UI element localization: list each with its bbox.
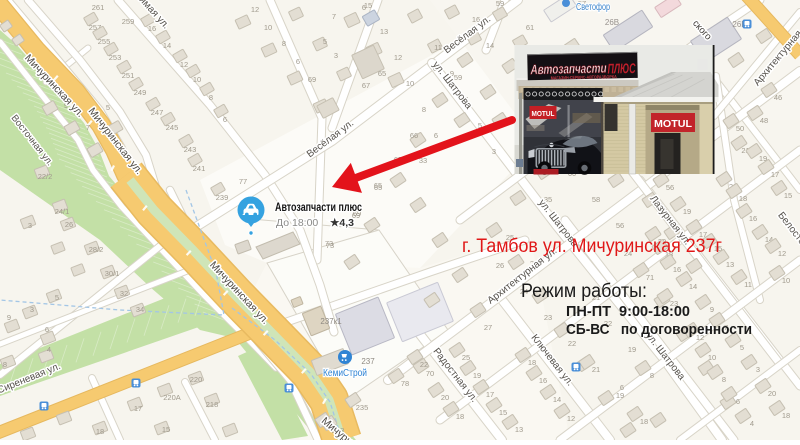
svg-text:50: 50	[736, 124, 744, 133]
svg-text:СБ-ВС по договоренности: СБ-ВС по договоренности	[566, 321, 752, 338]
svg-text:19: 19	[683, 207, 691, 216]
svg-text:48: 48	[760, 116, 768, 125]
svg-text:г. Тамбов ул. Мичуринская 237г: г. Тамбов ул. Мичуринская 237г	[462, 235, 722, 257]
svg-text:15: 15	[162, 425, 170, 434]
svg-text:27: 27	[484, 323, 492, 332]
svg-text:66: 66	[410, 131, 418, 140]
svg-text:253: 253	[109, 53, 122, 62]
svg-text:5: 5	[106, 103, 110, 112]
svg-text:6: 6	[736, 397, 740, 406]
svg-text:3: 3	[756, 365, 760, 374]
svg-text:3: 3	[334, 51, 338, 60]
svg-text:10: 10	[193, 75, 201, 84]
svg-text:17: 17	[771, 170, 779, 179]
svg-text:КемиСтрой: КемиСтрой	[323, 367, 367, 379]
svg-text:20: 20	[441, 393, 449, 402]
svg-text:8: 8	[722, 375, 726, 384]
svg-text:73: 73	[325, 239, 333, 248]
svg-text:12: 12	[567, 414, 575, 423]
svg-text:220: 220	[190, 375, 203, 384]
svg-text:56: 56	[616, 221, 624, 230]
svg-text:8: 8	[650, 371, 654, 380]
svg-text:9: 9	[7, 313, 11, 322]
svg-text:17: 17	[134, 404, 142, 413]
svg-text:6: 6	[296, 57, 300, 66]
svg-text:12: 12	[778, 249, 786, 258]
svg-text:7: 7	[332, 12, 336, 21]
svg-text:16: 16	[673, 265, 681, 274]
svg-text:18: 18	[456, 412, 464, 421]
svg-text:251: 251	[122, 71, 135, 80]
svg-text:22: 22	[420, 360, 428, 369]
svg-text:15: 15	[364, 1, 372, 10]
svg-text:259: 259	[122, 17, 135, 26]
svg-text:6: 6	[434, 131, 438, 140]
svg-text:13: 13	[515, 425, 523, 434]
svg-text:12: 12	[180, 60, 188, 69]
svg-text:Светофор: Светофор	[576, 1, 610, 13]
svg-text:18: 18	[739, 194, 747, 203]
svg-text:16: 16	[148, 24, 156, 33]
svg-text:4: 4	[750, 419, 754, 428]
svg-text:8: 8	[209, 93, 213, 102]
svg-text:30/1: 30/1	[105, 269, 120, 278]
svg-text:243: 243	[184, 145, 197, 154]
svg-text:25: 25	[462, 353, 470, 362]
svg-text:249: 249	[134, 88, 147, 97]
svg-text:14: 14	[163, 41, 171, 50]
svg-text:65: 65	[378, 69, 386, 78]
svg-text:26В: 26В	[605, 18, 619, 27]
svg-text:Режим работы:: Режим работы:	[521, 281, 647, 302]
svg-text:15: 15	[499, 408, 507, 417]
svg-text:56: 56	[666, 183, 674, 192]
svg-text:67: 67	[362, 81, 370, 90]
svg-text:23: 23	[544, 313, 552, 322]
svg-text:8: 8	[282, 39, 286, 48]
svg-text:15: 15	[784, 191, 792, 200]
svg-text:6: 6	[223, 115, 227, 124]
svg-text:5: 5	[740, 343, 744, 352]
svg-text:16: 16	[539, 376, 547, 385]
svg-text:17: 17	[486, 390, 494, 399]
svg-text:24/1: 24/1	[55, 207, 70, 216]
svg-text:3: 3	[492, 147, 496, 156]
svg-text:19: 19	[628, 345, 636, 354]
svg-text:235: 235	[356, 403, 369, 412]
svg-text:237к1: 237к1	[320, 317, 342, 326]
svg-text:34: 34	[136, 305, 144, 314]
svg-text:21: 21	[592, 365, 600, 374]
svg-text:22/2: 22/2	[38, 172, 53, 181]
svg-text:MOTUL: MOTUL	[654, 118, 693, 130]
svg-text:71: 71	[646, 273, 654, 282]
svg-text:5: 5	[55, 293, 59, 302]
svg-text:239: 239	[216, 193, 229, 202]
svg-text:26: 26	[496, 261, 504, 270]
svg-text:MOTUL: MOTUL	[532, 109, 555, 118]
svg-text:14: 14	[689, 282, 697, 291]
svg-text:10: 10	[406, 79, 414, 88]
svg-text:245: 245	[166, 123, 179, 132]
svg-text:255: 255	[98, 37, 111, 46]
svg-text:10: 10	[264, 23, 272, 32]
svg-text:До 18:00: До 18:00	[276, 217, 318, 229]
svg-text:70: 70	[426, 369, 434, 378]
svg-text:69: 69	[308, 75, 316, 84]
svg-text:20: 20	[768, 389, 776, 398]
svg-text:13: 13	[726, 260, 734, 269]
svg-text:59: 59	[496, 0, 504, 8]
svg-text:14: 14	[553, 395, 561, 404]
svg-text:12: 12	[251, 5, 259, 14]
svg-text:14: 14	[486, 41, 494, 50]
svg-text:4: 4	[47, 345, 51, 354]
svg-text:8: 8	[3, 360, 7, 369]
svg-text:65: 65	[374, 181, 382, 190]
svg-text:18: 18	[528, 358, 536, 367]
svg-text:58: 58	[592, 195, 600, 204]
svg-text:46: 46	[774, 93, 782, 102]
svg-text:11: 11	[744, 280, 752, 289]
svg-text:ПН-ПТ 9:00-18:00: ПН-ПТ 9:00-18:00	[566, 303, 690, 320]
svg-text:6: 6	[620, 383, 624, 392]
svg-text:218: 218	[206, 400, 219, 409]
svg-text:Автозапчасти плюс: Автозапчасти плюс	[275, 202, 362, 214]
svg-text:★4,3: ★4,3	[330, 217, 354, 229]
svg-text:19: 19	[473, 371, 481, 380]
svg-text:16: 16	[749, 214, 757, 223]
svg-text:19: 19	[616, 391, 624, 400]
svg-text:18: 18	[96, 427, 104, 436]
svg-text:8: 8	[422, 105, 426, 114]
svg-text:5: 5	[323, 37, 327, 46]
svg-text:237: 237	[361, 357, 375, 366]
svg-text:10: 10	[782, 276, 790, 285]
svg-text:10: 10	[708, 353, 716, 362]
svg-text:12: 12	[394, 53, 402, 62]
svg-text:22: 22	[568, 339, 576, 348]
svg-text:11: 11	[434, 43, 442, 52]
svg-text:9: 9	[710, 305, 714, 314]
svg-text:3: 3	[30, 305, 34, 314]
svg-text:261: 261	[92, 3, 105, 12]
svg-text:78: 78	[401, 379, 409, 388]
svg-text:32: 32	[120, 289, 128, 298]
svg-text:61: 61	[526, 23, 534, 32]
svg-text:28/2: 28/2	[89, 245, 104, 254]
svg-text:77: 77	[239, 177, 247, 186]
svg-text:241: 241	[193, 164, 206, 173]
svg-text:247: 247	[151, 108, 164, 117]
svg-text:18: 18	[782, 411, 790, 420]
svg-text:6: 6	[45, 325, 49, 334]
svg-text:7: 7	[86, 123, 90, 132]
svg-text:220А: 220А	[163, 393, 181, 402]
svg-text:26: 26	[65, 220, 73, 229]
svg-text:18: 18	[640, 417, 648, 426]
svg-text:3: 3	[28, 221, 32, 230]
svg-text:13: 13	[380, 27, 388, 36]
